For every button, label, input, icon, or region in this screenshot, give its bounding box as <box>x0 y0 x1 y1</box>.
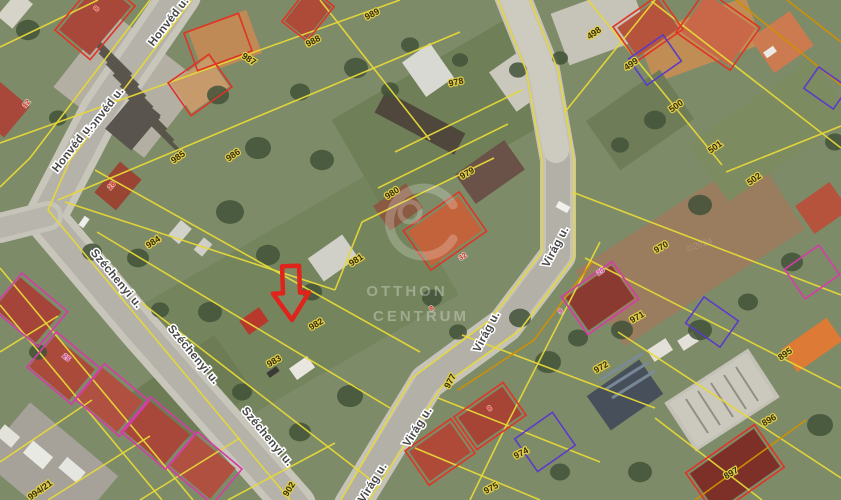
watermark-text-line1: OTTHON <box>366 283 447 300</box>
tree <box>310 150 334 170</box>
road-surface <box>0 216 48 228</box>
tree <box>550 464 570 481</box>
tree <box>568 330 588 347</box>
tree <box>151 302 169 317</box>
tree <box>611 321 633 340</box>
tree <box>509 309 531 328</box>
tree <box>452 53 468 67</box>
tree <box>644 111 666 130</box>
tree <box>449 324 467 339</box>
tree <box>611 137 629 152</box>
watermark-text-line2: CENTRUM <box>373 308 469 325</box>
tree <box>337 385 363 407</box>
tree <box>290 84 310 101</box>
tree <box>738 294 758 311</box>
tree <box>245 137 271 159</box>
satellite-map: 81228328892025OTTHONCENTRUM©202498798598… <box>0 0 841 500</box>
tree <box>216 200 244 224</box>
tree <box>688 195 712 215</box>
tree <box>628 462 652 482</box>
map-viewport[interactable]: 81228328892025OTTHONCENTRUM©202498798598… <box>0 0 841 500</box>
tree <box>807 414 833 436</box>
tree <box>688 320 712 340</box>
